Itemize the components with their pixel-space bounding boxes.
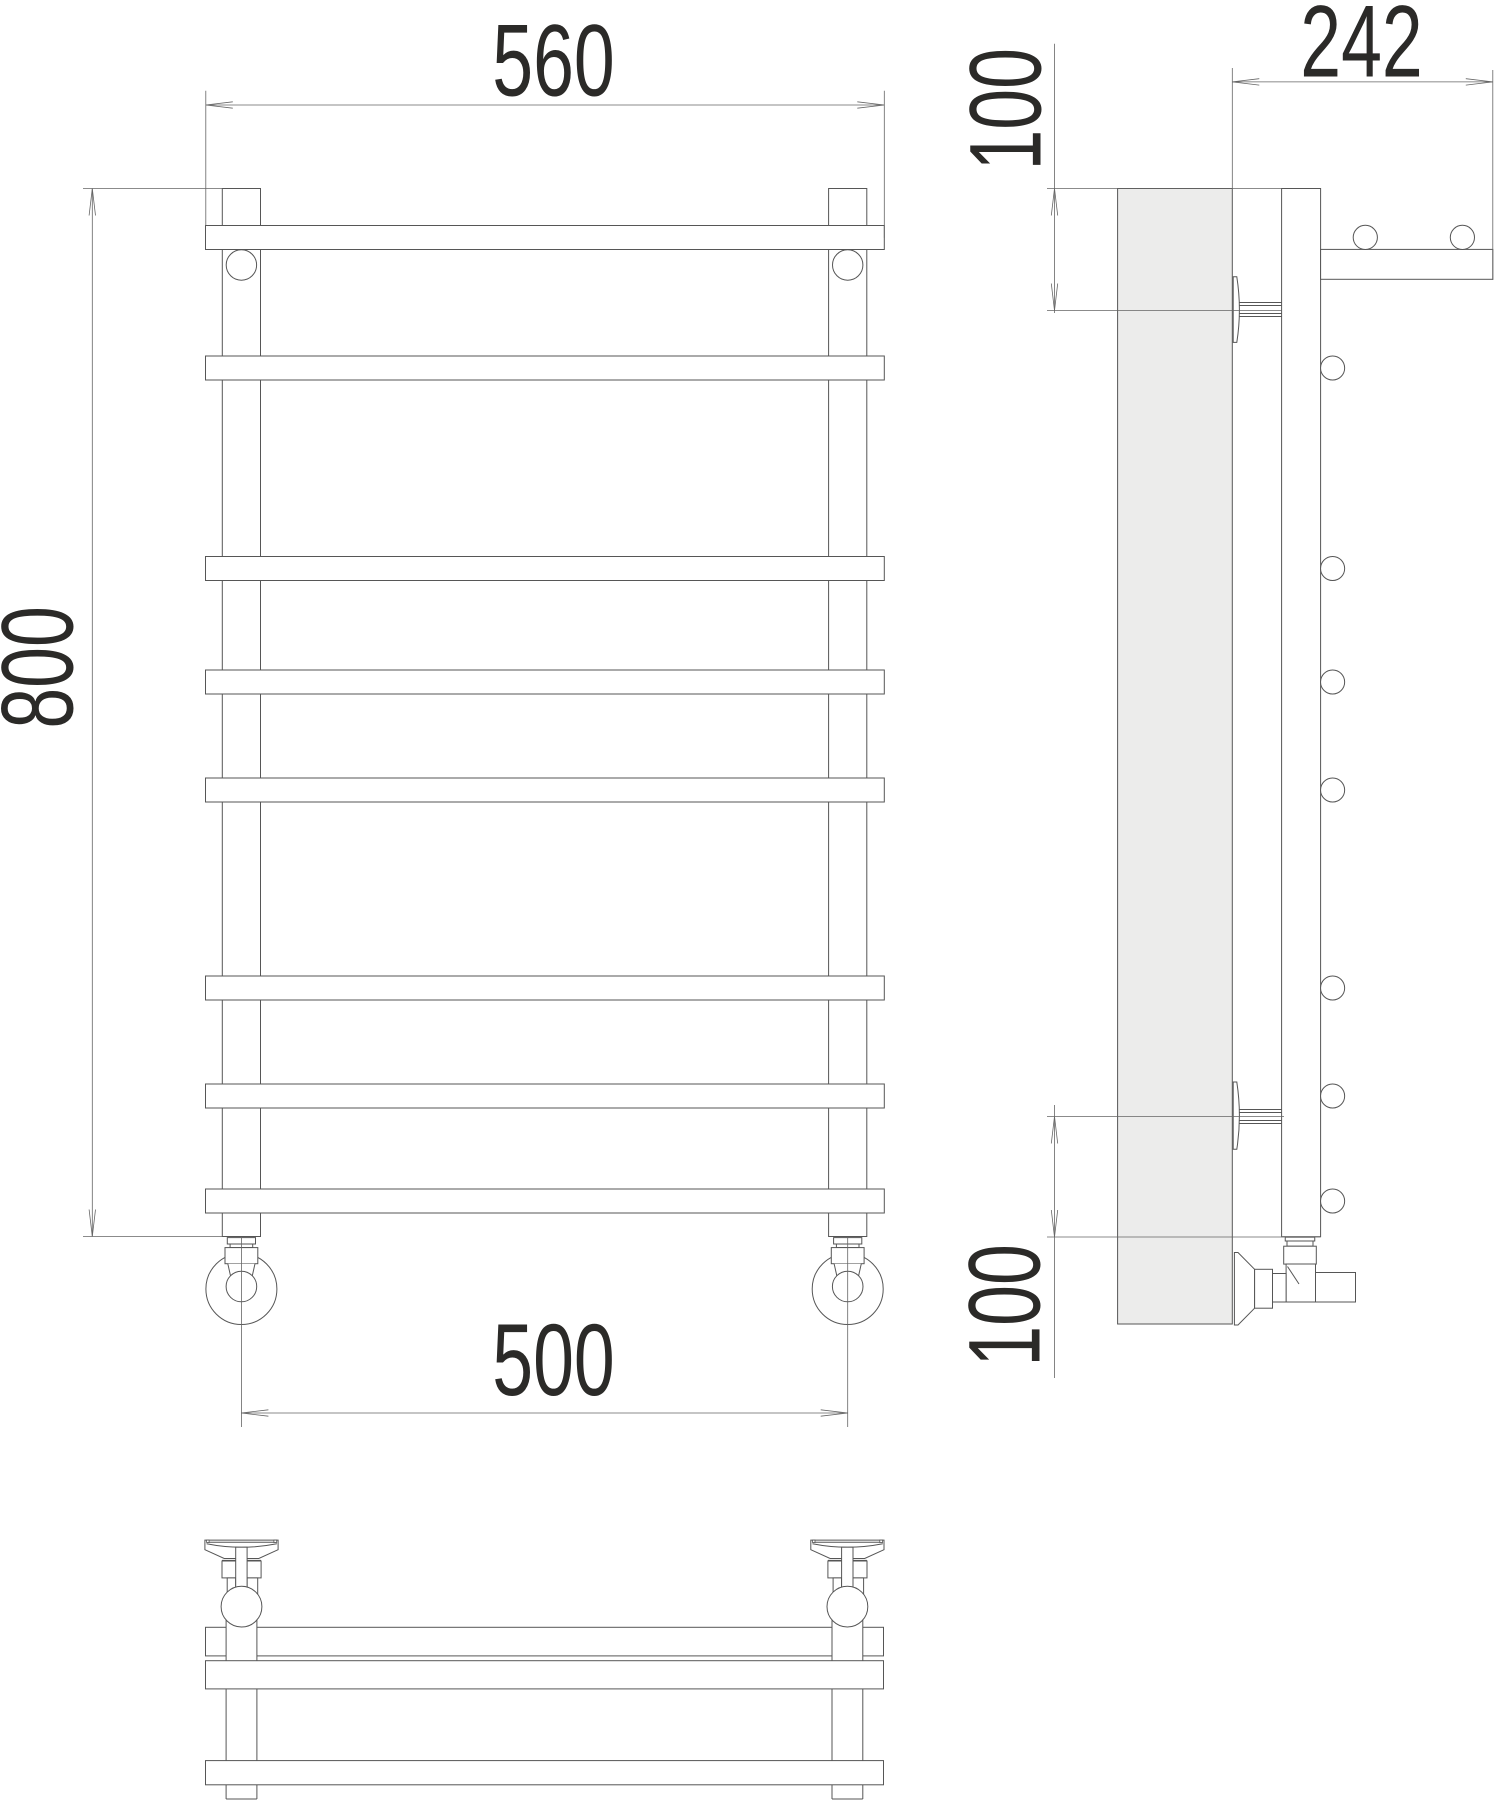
svg-text:100: 100 <box>948 48 1063 171</box>
svg-text:242: 242 <box>1300 0 1423 98</box>
svg-text:560: 560 <box>492 3 615 118</box>
svg-text:500: 500 <box>492 1302 615 1417</box>
svg-text:100: 100 <box>947 1244 1062 1367</box>
svg-text:800: 800 <box>0 606 95 729</box>
